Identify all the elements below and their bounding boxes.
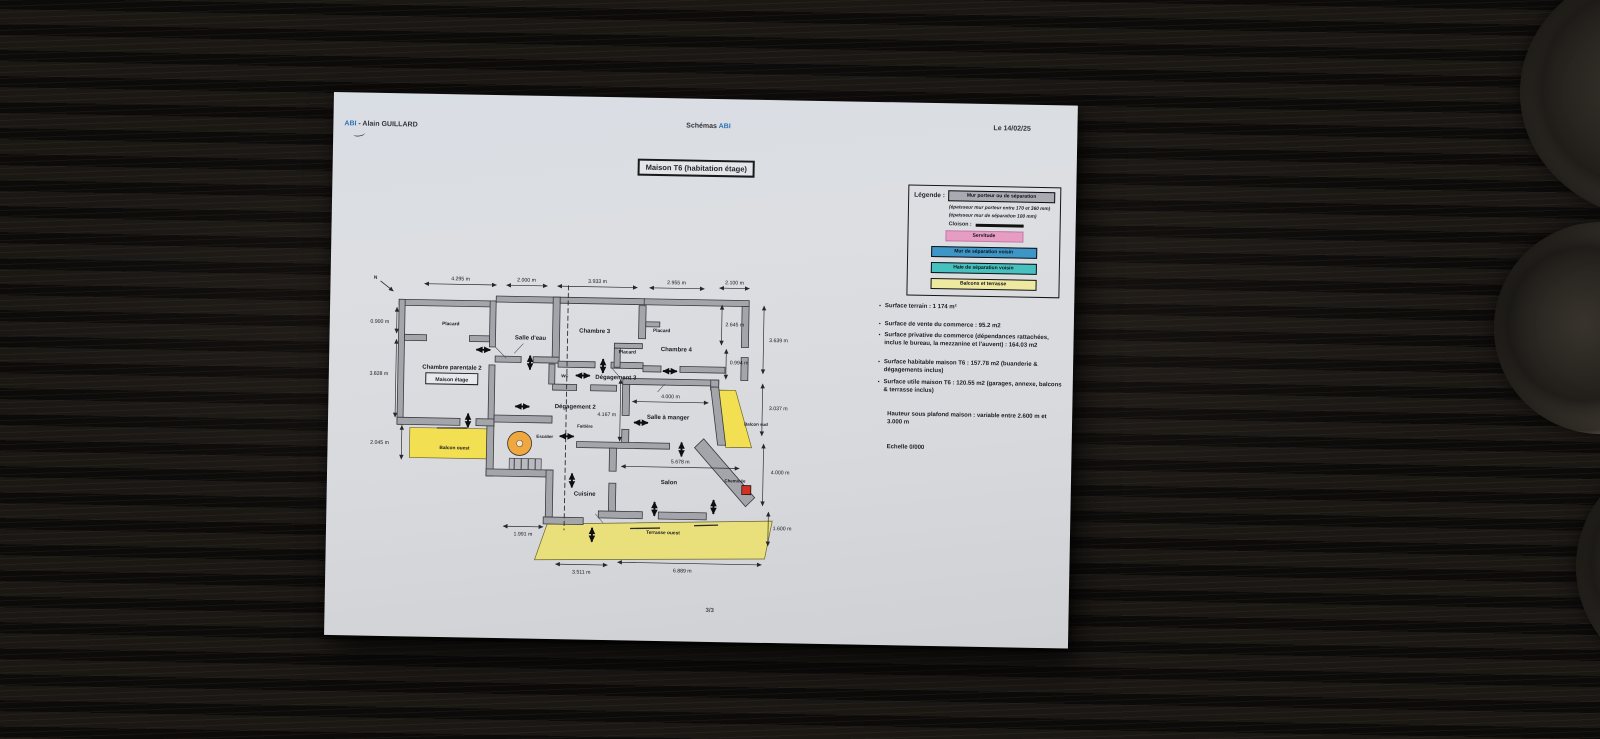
north-label: N <box>374 275 378 281</box>
page-title: Maison T6 (habitation étage) <box>638 159 756 178</box>
dim-3037: 3.037 m <box>769 406 788 412</box>
room-placard-3: Placard <box>619 349 637 355</box>
legend-swatch-mur-porteur: Mur porteur ou de séparation <box>948 190 1055 203</box>
room-wc: wc <box>560 373 568 379</box>
note-surface-habitable: ▪Surface habitable maison T6 : 157.78 m2… <box>878 358 1064 378</box>
room-degagement-3: Dégagement 3 <box>595 375 637 382</box>
signature-mark <box>353 130 366 138</box>
label-escalier: Escalier <box>536 434 553 439</box>
dim-2645: 2.645 m <box>725 322 744 328</box>
dim-6889: 6.889 m <box>673 568 692 574</box>
room-placard-1: Placard <box>442 321 460 327</box>
label-cheminee: Cheminée <box>724 478 746 483</box>
room-degagement-2: Dégagement 2 <box>555 404 597 411</box>
dim-4000-inner: 4.000 m <box>661 394 680 400</box>
dim-0994: 0.994 m <box>730 360 749 366</box>
label-terrasse-ouest: Terrasse ouest <box>646 530 680 537</box>
label-faitiere: Faitière <box>577 424 593 429</box>
legend-notes: (épaisseur mur porteur entre 170 et 360 … <box>949 204 1055 221</box>
cloison-line-sample <box>976 224 1024 227</box>
legend-title: Légende : <box>914 192 945 200</box>
stair-hatch <box>509 458 541 470</box>
note-surface-utile: ▪Surface utile maison T6 : 120.55 m2 (ga… <box>878 378 1064 398</box>
room-chambre-3: Chambre 3 <box>579 329 611 336</box>
room-salle-a-manger: Salle à manger <box>647 415 690 422</box>
document-sheet: ABI - Alain GUILLARD Schémas ABI Le 14/0… <box>324 92 1078 649</box>
room-salon: Salon <box>661 480 678 486</box>
dim-1600: 1.600 m <box>773 526 792 532</box>
label-balcon-sud: Balcon sud <box>744 422 768 427</box>
legend-swatch-haie-voisin: Haie de séparation voisin <box>930 262 1036 275</box>
author-brand: ABI <box>344 120 356 127</box>
schemas-label: Schémas <box>686 122 719 130</box>
legend-swatch-balcons: Balcons et terrasse <box>930 278 1036 291</box>
room-chambre-parentale-2: Chambre parentale 2 <box>422 365 482 372</box>
document-date: Le 14/02/25 <box>993 125 1030 133</box>
author-name: - Alain GUILLARD <box>356 120 417 128</box>
note-surface-vente: ▪Surface de vente du commerce : 95.2 m2 <box>879 320 1065 332</box>
dim-2045: 2.045 m <box>370 440 389 446</box>
dim-2955: 2.955 m <box>667 280 686 286</box>
note-echelle: Echelle 0/000 <box>887 443 1063 454</box>
note-hauteur-plafond: Hauteur sous plafond maison : variable e… <box>887 410 1063 429</box>
legend-box: Légende : Mur porteur ou de séparation (… <box>906 185 1061 299</box>
dim-4295: 4.295 m <box>451 276 470 282</box>
label-balcon-ouest: Balcon ouest <box>439 445 470 452</box>
legend-swatch-servitude: Servitude <box>945 231 1023 243</box>
dim-2000: 2.000 m <box>517 277 536 283</box>
dim-2100: 2.100 m <box>725 280 744 286</box>
legend-cloison-row: Cloison : <box>949 222 1055 230</box>
fireplace-marker <box>742 486 751 495</box>
shiny-stone-middle <box>1494 222 1600 434</box>
photo-scene: ABI - Alain GUILLARD Schémas ABI Le 14/0… <box>0 0 1600 739</box>
dim-5678: 5.678 m <box>671 459 690 465</box>
bullet-icon: ▪ <box>879 302 881 310</box>
room-placard-2: Placard <box>653 328 671 334</box>
dim-4000-right: 4.000 m <box>771 470 790 476</box>
bullet-icon: ▪ <box>878 378 880 394</box>
note-surface-terrain: ▪Surface terrain : 1 174 m² <box>879 302 1065 314</box>
dim-0900: 0.900 m <box>370 319 389 325</box>
bullet-icon: ▪ <box>878 331 880 347</box>
bullet-icon: ▪ <box>879 320 881 328</box>
room-chambre-4: Chambre 4 <box>661 347 693 354</box>
note-surface-privative: ▪Surface privative du commerce (dépendan… <box>878 331 1064 351</box>
bullet-icon: ▪ <box>878 358 880 374</box>
spiral-staircase <box>507 431 531 455</box>
room-cuisine: Cuisine <box>574 491 596 497</box>
dim-3511: 3.511 m <box>572 569 590 575</box>
dim-3639: 3.639 m <box>769 338 788 344</box>
document-header-center: Schémas ABI <box>613 121 803 131</box>
dim-4167: 4.167 m <box>597 412 616 418</box>
floor-plan: N <box>361 267 805 583</box>
surface-notes: ▪Surface terrain : 1 174 m² ▪Surface de … <box>877 302 1066 454</box>
north-arrow-icon: N <box>374 275 394 291</box>
cloison-label: Cloison : <box>949 222 972 228</box>
schemas-brand: ABI <box>719 123 731 130</box>
room-salle-deau: Salle d'eau <box>515 335 547 342</box>
dim-1991: 1.991 m <box>513 531 532 537</box>
document-author: ABI - Alain GUILLARD <box>344 120 417 128</box>
page-number: 3/3 <box>705 608 713 614</box>
dim-3933: 3.933 m <box>588 279 607 285</box>
dim-3828: 3.828 m <box>369 371 388 377</box>
shiny-stone-bottom <box>1576 452 1600 682</box>
legend-swatch-mur-voisin: Mur de séparation voisin <box>931 246 1037 259</box>
maison-etage-label: Maison étage <box>435 377 468 384</box>
maison-etage-box: Maison étage <box>426 373 478 385</box>
shiny-stone-top <box>1520 0 1600 220</box>
